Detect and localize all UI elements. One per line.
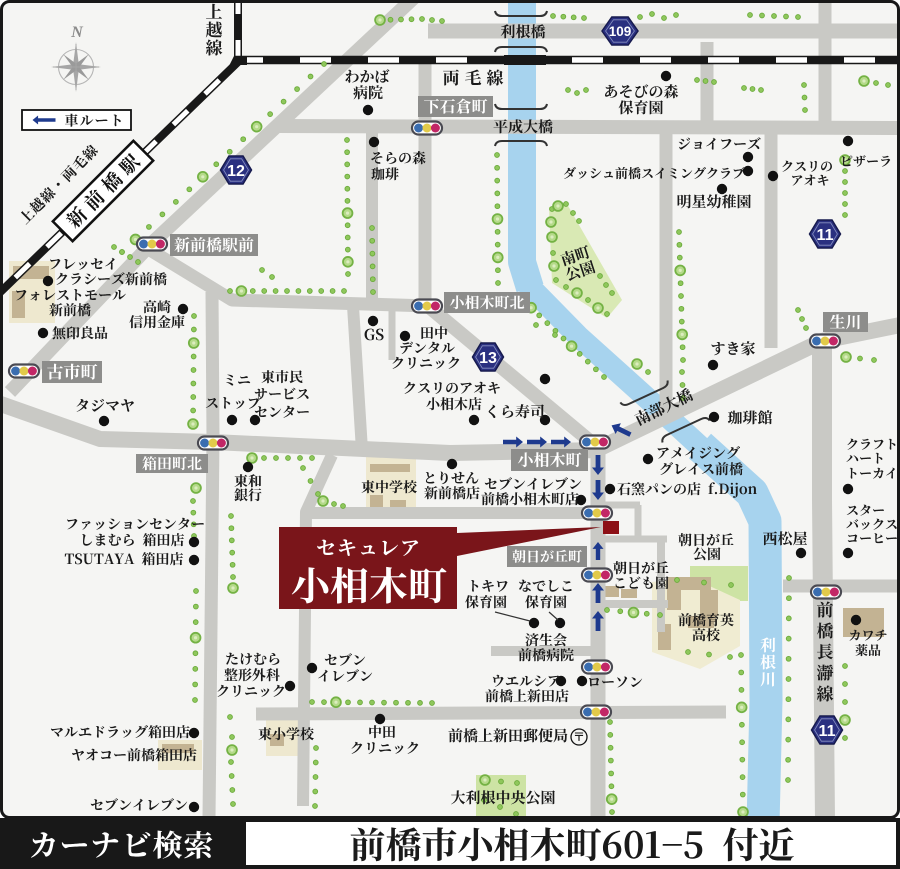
svg-text:11: 11 xyxy=(819,723,836,740)
svg-text:11: 11 xyxy=(817,227,834,244)
svg-text:N: N xyxy=(70,24,84,41)
svg-text:109: 109 xyxy=(609,24,632,39)
svg-text:12: 12 xyxy=(227,163,245,180)
svg-text:13: 13 xyxy=(479,350,497,367)
